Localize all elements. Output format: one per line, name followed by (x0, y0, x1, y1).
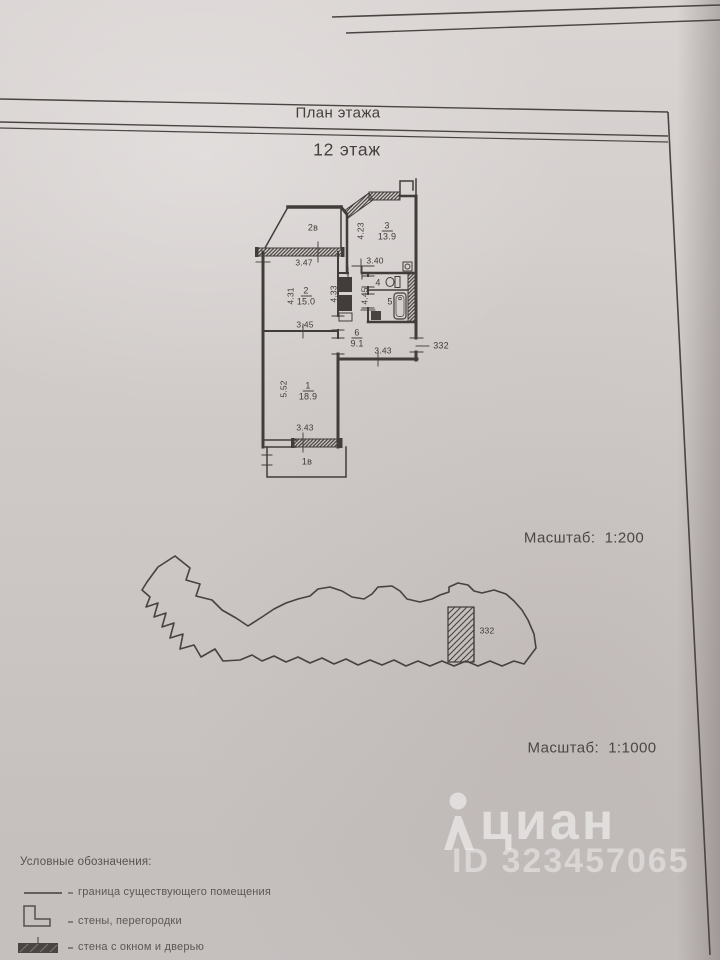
site-scale-label: Масштаб: 1:1000 (528, 740, 657, 757)
balcony-1v-label: 1в (302, 458, 312, 467)
washer-icon (371, 311, 381, 320)
room-6-number: 6 (351, 328, 362, 339)
dim-room2-width: 3.45 (296, 321, 313, 330)
scanned-floorplan-sheet: План этажа 12 этаж 3 13.9 2 15.0 6 9.1 1… (0, 0, 720, 960)
legend-wall-symbol (24, 906, 50, 926)
room-1-area: 18.9 (299, 392, 317, 402)
dim-room1-width: 3.43 (296, 424, 313, 433)
toilet-icon (386, 277, 400, 288)
highlighted-apartment-block (448, 607, 474, 662)
dim-room3-height: 4.23 (357, 222, 366, 239)
vent-icon (403, 262, 412, 271)
sheet-header-title: План этажа (295, 105, 380, 122)
room-3-label: 3 13.9 (378, 221, 396, 242)
apartment-number-label: 332 (433, 342, 449, 351)
room-2-number: 2 (300, 286, 311, 297)
legend-item-window-wall: стена с окном и дверью (78, 941, 204, 953)
legend-item-boundary: граница существующего помещения (78, 886, 271, 898)
dim-room2-height-left: 4.31 (287, 287, 296, 304)
dim-bath-height: 4.45 (361, 287, 370, 304)
bathtub-icon (394, 293, 406, 319)
legend-title: Условные обозначения: (20, 856, 152, 868)
room-2-area: 15.0 (297, 297, 315, 307)
legend-window-wall-symbol (18, 937, 58, 953)
room-5-label: 5 (387, 298, 392, 307)
room-6-label: 6 9.1 (350, 328, 363, 349)
legend-symbols (18, 893, 73, 953)
room-3-area: 13.9 (378, 232, 396, 242)
dim-balcony2-width: 3.47 (295, 259, 312, 268)
legend-item-walls: стены, перегородки (78, 915, 182, 927)
balcony-2v-label: 2в (308, 224, 318, 233)
site-plan (142, 556, 536, 666)
watermark-listing-id: ID 323457065 (452, 842, 690, 881)
dim-hall-width: 3.43 (374, 347, 391, 356)
room-1-label: 1 18.9 (299, 381, 317, 402)
dim-room3-width: 3.40 (366, 257, 383, 266)
room-3-number: 3 (381, 221, 392, 232)
site-apartment-label: 332 (480, 627, 495, 636)
room-4-label: 4 (375, 279, 380, 288)
duct-shafts (339, 277, 352, 321)
room-2-label: 2 15.0 (297, 286, 315, 307)
dim-room1-height: 5.52 (280, 380, 289, 397)
dim-room2-height-right: 4.33 (330, 285, 339, 302)
floor-scale-label: Масштаб: 1:200 (524, 530, 644, 547)
room-1-number: 1 (302, 381, 313, 392)
room-6-area: 9.1 (350, 339, 363, 349)
floor-title: 12 этаж (313, 140, 381, 161)
apartment-floorplan (255, 179, 429, 477)
